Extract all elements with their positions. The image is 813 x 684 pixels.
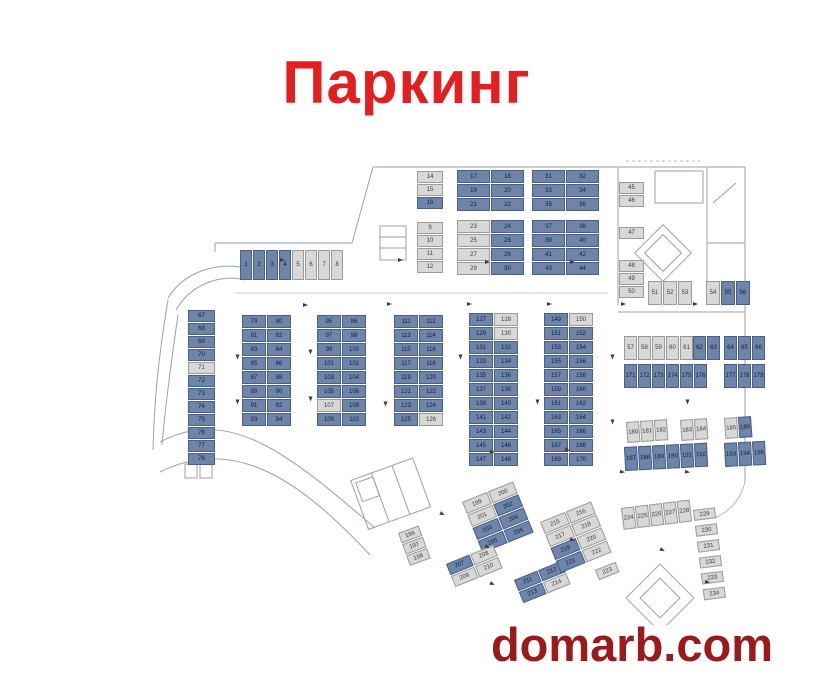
parking-spot-118: 118 xyxy=(419,357,443,370)
parking-group-band3-c: 185186 xyxy=(724,416,752,439)
parking-spot-104: 104 xyxy=(342,371,366,384)
traffic-arrow xyxy=(398,258,403,262)
traffic-arrow xyxy=(384,402,388,407)
parking-spot-79: 79 xyxy=(242,315,266,328)
parking-spot-39: 39 xyxy=(532,234,565,247)
parking-spot-68: 68 xyxy=(188,323,215,335)
parking-spot-141: 141 xyxy=(469,411,493,424)
parking-group-mid-left-col: 676869707172737475767778 xyxy=(188,310,215,465)
parking-group-top-b-lower: 3738394041424344 xyxy=(532,220,599,275)
parking-spot-34: 34 xyxy=(566,184,599,197)
parking-spot-139: 139 xyxy=(469,397,493,410)
parking-spot-37: 37 xyxy=(532,220,565,233)
parking-group-band2-trio: 177178179 xyxy=(724,364,765,388)
parking-group-mid-grp-5: 1491501511521531541551561571581591601611… xyxy=(544,313,593,466)
parking-spot-137: 137 xyxy=(469,383,493,396)
parking-spot-10: 10 xyxy=(417,235,443,247)
parking-spot-136: 136 xyxy=(494,369,518,382)
traffic-arrow xyxy=(280,258,285,262)
parking-spot-72: 72 xyxy=(188,375,215,387)
parking-spot-106: 106 xyxy=(342,385,366,398)
parking-spot-149: 149 xyxy=(544,313,568,326)
parking-spot-112: 112 xyxy=(419,315,443,328)
parking-spot-168: 168 xyxy=(569,439,593,452)
parking-spot-5: 5 xyxy=(292,250,304,280)
parking-spot-69: 69 xyxy=(188,336,215,348)
parking-spot-165: 165 xyxy=(544,425,568,438)
parking-spot-169: 169 xyxy=(544,453,568,466)
parking-spot-46: 46 xyxy=(619,195,644,207)
parking-spot-65: 65 xyxy=(738,336,751,360)
parking-spot-121: 121 xyxy=(394,385,418,398)
parking-spot-19: 19 xyxy=(457,184,490,197)
parking-spot-9: 9 xyxy=(417,222,443,234)
parking-spot-2: 2 xyxy=(253,250,265,280)
parking-spot-21: 21 xyxy=(457,198,490,211)
parking-spot-43: 43 xyxy=(532,262,565,275)
parking-spot-81: 81 xyxy=(242,329,266,342)
parking-spot-227: 227 xyxy=(663,501,679,524)
parking-spot-156: 156 xyxy=(569,355,593,368)
parking-group-band4-trio: 193194195 xyxy=(724,441,766,467)
parking-spot-163: 163 xyxy=(544,411,568,424)
parking-spot-67: 67 xyxy=(188,310,215,322)
parking-spot-18: 18 xyxy=(491,170,524,183)
parking-spot-15: 15 xyxy=(417,184,443,196)
parking-spot-186: 186 xyxy=(738,416,752,438)
parking-spot-162: 162 xyxy=(569,397,593,410)
parking-spot-148: 148 xyxy=(494,453,518,466)
parking-spot-124: 124 xyxy=(419,399,443,412)
parking-group-band1-pair: 6263 xyxy=(693,336,720,360)
parking-spot-187: 187 xyxy=(624,446,638,471)
parking-spot-226: 226 xyxy=(649,503,665,526)
parking-spot-105: 105 xyxy=(317,385,341,398)
traffic-arrow xyxy=(685,470,691,475)
parking-spot-32: 32 xyxy=(566,170,599,183)
parking-group-band3-b: 183184 xyxy=(680,418,708,441)
parking-spot-80: 80 xyxy=(267,315,291,328)
parking-spot-71: 71 xyxy=(188,362,215,374)
parking-spot-95: 95 xyxy=(317,315,341,328)
traffic-arrow xyxy=(303,303,308,307)
parking-spot-115: 115 xyxy=(394,343,418,356)
parking-spot-155: 155 xyxy=(544,355,568,368)
traffic-arrow xyxy=(387,302,392,306)
parking-spot-150: 150 xyxy=(569,313,593,326)
parking-spot-100: 100 xyxy=(342,343,366,356)
parking-spot-58: 58 xyxy=(638,336,651,360)
parking-spot-129: 129 xyxy=(469,327,493,340)
traffic-arrow xyxy=(309,397,313,402)
parking-group-top-a-lower: 2324252627282930 xyxy=(457,220,524,275)
parking-spot-45: 45 xyxy=(619,182,644,194)
parking-spot-179: 179 xyxy=(752,364,765,388)
parking-spot-38: 38 xyxy=(566,220,599,233)
parking-group-band1-trio: 646566 xyxy=(724,336,765,360)
parking-spot-14: 14 xyxy=(417,171,443,183)
parking-spot-127: 127 xyxy=(469,313,493,326)
parking-spot-189: 189 xyxy=(652,445,666,470)
traffic-arrow xyxy=(621,302,626,306)
parking-spot-103: 103 xyxy=(317,371,341,384)
parking-spot-23: 23 xyxy=(457,220,490,233)
parking-group-top-a-upper: 171819202122 xyxy=(457,170,524,211)
parking-spot-96: 96 xyxy=(342,315,366,328)
parking-spot-171: 171 xyxy=(624,364,637,388)
parking-spot-11: 11 xyxy=(417,248,443,260)
traffic-arrow xyxy=(693,302,698,306)
traffic-arrow xyxy=(485,260,490,264)
parking-group-right-col-a: 4546 xyxy=(619,182,644,207)
parking-spot-117: 117 xyxy=(394,357,418,370)
parking-spot-230: 230 xyxy=(695,523,718,537)
parking-group-top-col-upper: 141516 xyxy=(417,171,443,209)
parking-spot-61: 61 xyxy=(680,336,693,360)
site-watermark: domarb.com xyxy=(491,617,773,672)
parking-group-right-row-a: 515253 xyxy=(648,281,692,305)
parking-spot-101: 101 xyxy=(317,357,341,370)
traffic-arrow xyxy=(705,580,711,585)
parking-spot-123: 123 xyxy=(394,399,418,412)
traffic-arrow xyxy=(611,420,615,425)
parking-spot-51: 51 xyxy=(648,281,662,305)
parking-spot-138: 138 xyxy=(494,383,518,396)
parking-spot-50: 50 xyxy=(619,286,644,298)
parking-spot-92: 92 xyxy=(267,399,291,412)
parking-spot-108: 108 xyxy=(342,399,366,412)
parking-spot-110: 110 xyxy=(342,413,366,426)
parking-spot-158: 158 xyxy=(569,369,593,382)
parking-spot-157: 157 xyxy=(544,369,568,382)
parking-spot-122: 122 xyxy=(419,385,443,398)
traffic-arrow xyxy=(536,400,540,405)
parking-spot-126: 126 xyxy=(419,413,443,426)
parking-group-right-col-c: 484950 xyxy=(619,260,644,298)
parking-group-band1-gray: 5758596061 xyxy=(624,336,693,360)
parking-group-band2-six: 171172173174175176 xyxy=(624,364,707,388)
parking-spot-55: 55 xyxy=(721,281,735,305)
parking-spot-91: 91 xyxy=(242,399,266,412)
parking-spot-73: 73 xyxy=(188,388,215,400)
parking-spot-7: 7 xyxy=(318,250,330,280)
parking-spot-181: 181 xyxy=(640,420,654,442)
parking-spot-172: 172 xyxy=(638,364,651,388)
parking-spot-28: 28 xyxy=(491,248,524,261)
parking-spot-130: 130 xyxy=(494,327,518,340)
parking-spot-146: 146 xyxy=(494,439,518,452)
parking-spot-173: 173 xyxy=(652,364,665,388)
page: { "title": {"text": "Паркинг"}, "waterma… xyxy=(0,0,813,684)
parking-spot-224: 224 xyxy=(621,506,637,529)
parking-spot-176: 176 xyxy=(694,364,707,388)
parking-spot-85: 85 xyxy=(242,357,266,370)
parking-spot-30: 30 xyxy=(491,262,524,275)
parking-spot-135: 135 xyxy=(469,369,493,382)
traffic-arrow xyxy=(236,400,240,405)
traffic-arrow xyxy=(309,350,313,355)
parking-spot-49: 49 xyxy=(619,273,644,285)
parking-spot-170: 170 xyxy=(569,453,593,466)
parking-group-mid-grp-1: 79808182838485868788899091929394 xyxy=(242,315,291,426)
parking-spot-17: 17 xyxy=(457,170,490,183)
parking-spot-6: 6 xyxy=(305,250,317,280)
parking-spot-183: 183 xyxy=(680,419,694,441)
parking-spot-159: 159 xyxy=(544,383,568,396)
parking-spot-182: 182 xyxy=(654,419,668,441)
parking-spot-229: 229 xyxy=(693,507,716,521)
parking-group-mid-grp-4: 1271281291301311321331341351361371381391… xyxy=(469,313,518,466)
parking-spot-99: 99 xyxy=(317,343,341,356)
parking-spot-1: 1 xyxy=(240,250,252,280)
parking-spot-175: 175 xyxy=(680,364,693,388)
parking-spot-88: 88 xyxy=(267,371,291,384)
parking-spot-194: 194 xyxy=(738,442,752,467)
parking-spot-83: 83 xyxy=(242,343,266,356)
parking-spot-190: 190 xyxy=(666,444,680,469)
parking-spot-25: 25 xyxy=(457,234,490,247)
parking-group-top-col-lower: 9101112 xyxy=(417,222,443,273)
parking-spot-154: 154 xyxy=(569,341,593,354)
parking-spot-53: 53 xyxy=(678,281,692,305)
parking-spot-151: 151 xyxy=(544,327,568,340)
traffic-arrow xyxy=(547,302,552,306)
parking-spot-89: 89 xyxy=(242,385,266,398)
parking-spot-191: 191 xyxy=(680,443,694,468)
parking-spot-185: 185 xyxy=(724,417,738,439)
parking-group-entry-strip: 12345678 xyxy=(240,250,343,280)
parking-spot-144: 144 xyxy=(494,425,518,438)
parking-spot-147: 147 xyxy=(469,453,493,466)
parking-spot-35: 35 xyxy=(532,198,565,211)
parking-spot-152: 152 xyxy=(569,327,593,340)
parking-spot-134: 134 xyxy=(494,355,518,368)
parking-spot-63: 63 xyxy=(707,336,720,360)
traffic-arrow xyxy=(467,302,472,306)
parking-spot-47: 47 xyxy=(619,227,644,239)
parking-spot-107: 107 xyxy=(317,399,341,412)
parking-spot-3: 3 xyxy=(266,250,278,280)
parking-spot-192: 192 xyxy=(694,443,708,468)
parking-spot-128: 128 xyxy=(494,313,518,326)
parking-spot-31: 31 xyxy=(532,170,565,183)
parking-group-band3-a: 180181182 xyxy=(626,419,668,443)
parking-spot-161: 161 xyxy=(544,397,568,410)
parking-spot-84: 84 xyxy=(267,343,291,356)
parking-spot-166: 166 xyxy=(569,425,593,438)
parking-spot-26: 26 xyxy=(491,234,524,247)
parking-spot-116: 116 xyxy=(419,343,443,356)
parking-spot-184: 184 xyxy=(694,418,708,440)
parking-spot-90: 90 xyxy=(267,385,291,398)
traffic-arrow xyxy=(459,355,463,360)
parking-spot-97: 97 xyxy=(317,329,341,342)
parking-spot-20: 20 xyxy=(491,184,524,197)
parking-spot-82: 82 xyxy=(267,329,291,342)
parking-group-mid-grp-3: 1111121131141151161171181191201211221231… xyxy=(394,315,443,426)
parking-spot-143: 143 xyxy=(469,425,493,438)
parking-spot-57: 57 xyxy=(624,336,637,360)
parking-spot-4: 4 xyxy=(279,250,291,280)
parking-spot-153: 153 xyxy=(544,341,568,354)
parking-spot-131: 131 xyxy=(469,341,493,354)
parking-spot-193: 193 xyxy=(724,442,738,467)
parking-spot-231: 231 xyxy=(697,539,720,553)
parking-spot-59: 59 xyxy=(652,336,665,360)
parking-group-band4-six: 187188189190191192 xyxy=(624,443,708,471)
parking-spot-64: 64 xyxy=(724,336,737,360)
parking-spot-36: 36 xyxy=(566,198,599,211)
traffic-arrow xyxy=(686,400,690,405)
parking-spot-160: 160 xyxy=(569,383,593,396)
parking-group-right-col-b: 47 xyxy=(619,227,644,239)
parking-spot-16: 16 xyxy=(417,197,443,209)
parking-spot-113: 113 xyxy=(394,329,418,342)
parking-spot-62: 62 xyxy=(693,336,706,360)
parking-spot-22: 22 xyxy=(491,198,524,211)
parking-spot-125: 125 xyxy=(394,413,418,426)
parking-spot-232: 232 xyxy=(699,555,722,569)
parking-spot-228: 228 xyxy=(677,500,693,523)
parking-spot-178: 178 xyxy=(738,364,751,388)
parking-spot-109: 109 xyxy=(317,413,341,426)
parking-spot-77: 77 xyxy=(188,440,215,452)
parking-spot-195: 195 xyxy=(752,441,766,466)
parking-spot-40: 40 xyxy=(566,234,599,247)
parking-spot-56: 56 xyxy=(736,281,750,305)
page-title: Паркинг xyxy=(0,48,813,117)
parking-spot-78: 78 xyxy=(188,453,215,465)
traffic-arrow xyxy=(611,355,615,360)
parking-spot-119: 119 xyxy=(394,371,418,384)
parking-spot-114: 114 xyxy=(419,329,443,342)
parking-spot-41: 41 xyxy=(532,248,565,261)
parking-spot-174: 174 xyxy=(666,364,679,388)
parking-spot-60: 60 xyxy=(666,336,679,360)
parking-spot-102: 102 xyxy=(342,357,366,370)
parking-spot-164: 164 xyxy=(569,411,593,424)
parking-spot-75: 75 xyxy=(188,414,215,426)
parking-spot-177: 177 xyxy=(724,364,737,388)
parking-spot-225: 225 xyxy=(635,505,651,528)
parking-spot-12: 12 xyxy=(417,261,443,273)
parking-spot-111: 111 xyxy=(394,315,418,328)
parking-spot-76: 76 xyxy=(188,427,215,439)
parking-spot-98: 98 xyxy=(342,329,366,342)
parking-group-right-row-b: 545556 xyxy=(706,281,750,305)
parking-spot-188: 188 xyxy=(638,446,652,471)
parking-spot-33: 33 xyxy=(532,184,565,197)
parking-group-top-b-upper: 313233343536 xyxy=(532,170,599,211)
parking-spot-52: 52 xyxy=(663,281,677,305)
parking-spot-8: 8 xyxy=(331,250,343,280)
parking-spot-132: 132 xyxy=(494,341,518,354)
parking-spot-24: 24 xyxy=(491,220,524,233)
parking-spot-86: 86 xyxy=(267,357,291,370)
parking-spot-93: 93 xyxy=(242,413,266,426)
parking-spot-120: 120 xyxy=(419,371,443,384)
traffic-arrow xyxy=(236,355,240,360)
parking-spot-140: 140 xyxy=(494,397,518,410)
traffic-arrow xyxy=(620,470,626,475)
traffic-arrow xyxy=(570,260,575,264)
parking-spot-66: 66 xyxy=(752,336,765,360)
parking-spot-48: 48 xyxy=(619,260,644,272)
parking-plan: 1234567891011121415161718192021222324252… xyxy=(140,150,755,625)
parking-spot-133: 133 xyxy=(469,355,493,368)
parking-spot-70: 70 xyxy=(188,349,215,361)
parking-spot-87: 87 xyxy=(242,371,266,384)
parking-spot-54: 54 xyxy=(706,281,720,305)
parking-group-mid-grp-2: 9596979899100101102103104105106107108109… xyxy=(317,315,366,426)
parking-spot-142: 142 xyxy=(494,411,518,424)
parking-spot-180: 180 xyxy=(626,421,640,443)
parking-spot-74: 74 xyxy=(188,401,215,413)
parking-spot-94: 94 xyxy=(267,413,291,426)
